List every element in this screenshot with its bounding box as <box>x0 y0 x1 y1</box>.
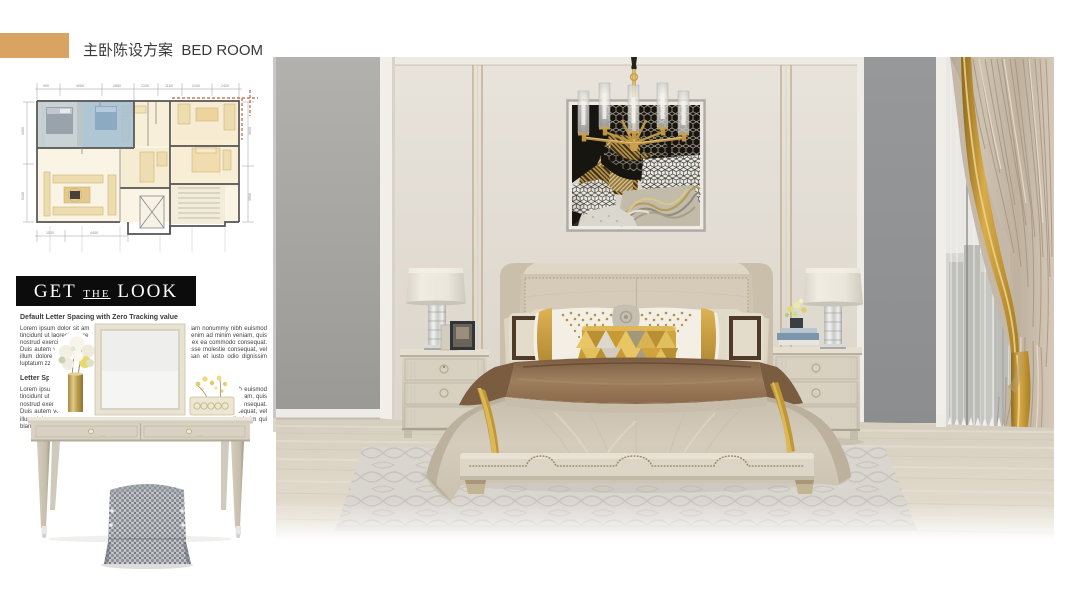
svg-text:3300: 3300 <box>21 127 25 135</box>
svg-text:5100: 5100 <box>21 192 25 200</box>
svg-text:4050: 4050 <box>76 84 84 88</box>
svg-text:1150: 1150 <box>165 84 173 88</box>
svg-text:3900: 3900 <box>248 193 252 201</box>
svg-text:4400: 4400 <box>90 231 98 235</box>
svg-text:3600: 3600 <box>248 127 252 135</box>
svg-text:2850: 2850 <box>113 84 121 88</box>
svg-text:900: 900 <box>43 84 49 88</box>
svg-text:2400: 2400 <box>221 84 229 88</box>
svg-text:2100: 2100 <box>192 84 200 88</box>
svg-text:2100: 2100 <box>141 84 149 88</box>
